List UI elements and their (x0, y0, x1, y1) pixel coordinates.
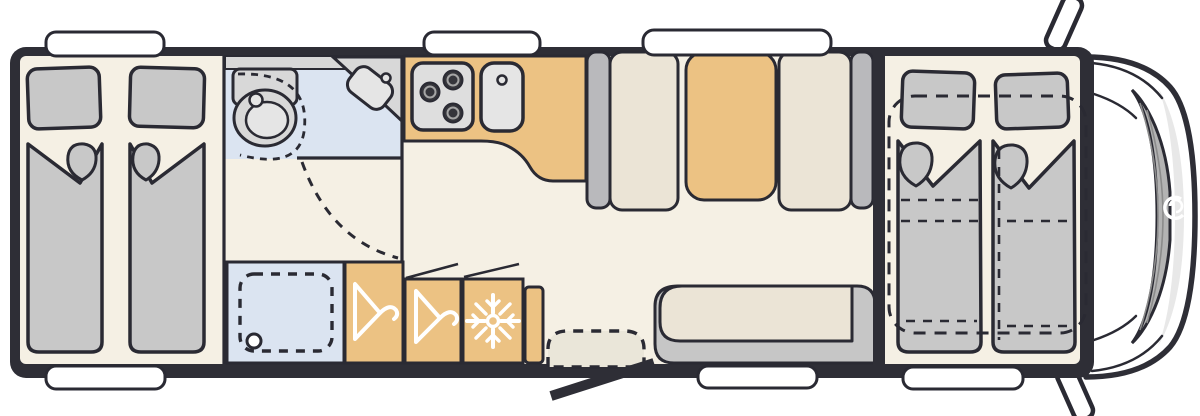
shower-drain (247, 334, 261, 348)
bed-pillow (995, 73, 1069, 129)
window (698, 366, 817, 388)
side-sofa (655, 286, 875, 363)
window (46, 32, 164, 56)
motorhome-floorplan (0, 0, 1200, 416)
step-cabinet (525, 287, 543, 363)
bench-seat (779, 52, 851, 210)
window (46, 366, 165, 389)
bed-pillow (129, 67, 205, 128)
kitchen-sink (481, 63, 523, 131)
entry-step (548, 331, 644, 367)
window (643, 30, 831, 55)
dinette-table (686, 52, 776, 200)
dinette (587, 52, 873, 210)
mirror-arm-top-icon (1043, 0, 1084, 53)
bench-backrest (587, 52, 610, 208)
sofa-cushion (660, 286, 852, 341)
shower (227, 262, 344, 363)
window (424, 32, 540, 55)
wardrobe (405, 279, 461, 363)
faucet-dot (498, 76, 507, 85)
bench-backrest (851, 52, 873, 208)
window (903, 367, 1023, 389)
bench-seat (610, 52, 678, 210)
entry-door (548, 331, 654, 396)
partition-wall (873, 54, 885, 377)
bed-pillow (27, 67, 101, 129)
bed-pillow (901, 71, 975, 129)
faucet-dot (382, 74, 391, 83)
